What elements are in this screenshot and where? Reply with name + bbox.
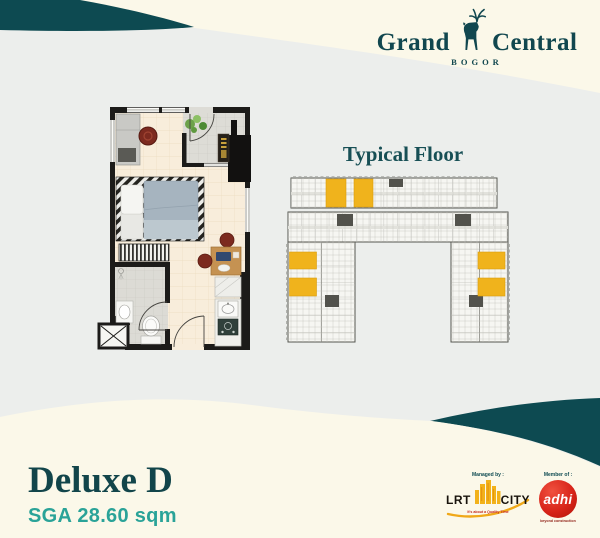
entrance-bottom-opening	[172, 344, 204, 350]
wardrobe	[215, 277, 241, 297]
typical-floor-title: Typical Floor	[278, 142, 528, 167]
managed-by-label: Managed by :	[446, 472, 530, 478]
city-word: CITY	[501, 494, 530, 506]
brochure-page: Grand Central BOGOR	[0, 0, 600, 538]
highlighted-unit	[290, 252, 317, 269]
sofa-cabinet	[116, 114, 140, 165]
unit-sign-plaque	[218, 134, 229, 162]
unit-info: Deluxe D SGA 28.60 sqm	[28, 460, 177, 528]
unit-floor-plan	[88, 93, 263, 358]
managed-by-block: Managed by : LRT	[446, 472, 530, 528]
member-of-block: Member of : adhi beyond construction	[530, 472, 586, 523]
brand-logo: Grand Central BOGOR	[372, 6, 582, 67]
highlighted-unit	[478, 278, 505, 296]
adhi-logo: adhi	[539, 480, 577, 518]
main-door-opening	[189, 107, 213, 113]
column-stem	[231, 120, 237, 135]
logo-word-central: Central	[492, 30, 577, 55]
lrt-tagline: It's about a Quality Time	[446, 510, 530, 514]
logo-city-label: BOGOR	[372, 57, 582, 67]
lrt-word: LRT	[446, 494, 471, 506]
typical-floor-plan	[276, 168, 528, 350]
unit-name-title: Deluxe D	[28, 460, 177, 503]
highlighted-unit	[326, 179, 346, 207]
adhi-tagline: beyond construction	[530, 519, 586, 523]
highlighted-unit	[354, 179, 373, 207]
highlighted-unit	[478, 252, 505, 269]
adhi-wordmark: adhi	[544, 492, 573, 507]
column-block	[228, 135, 251, 182]
lrt-city-logo: LRT CITY It's about a Quality Time	[446, 480, 530, 528]
bench-console	[119, 244, 169, 261]
highlighted-unit	[290, 278, 317, 296]
logo-word-grand: Grand	[377, 30, 450, 55]
unit-area-label: SGA 28.60 sqm	[28, 505, 177, 528]
bed	[116, 177, 204, 241]
kitchen-counter	[215, 299, 241, 346]
round-table	[139, 127, 157, 145]
deer-icon	[453, 6, 489, 56]
member-of-label: Member of :	[530, 472, 586, 478]
service-shaft	[99, 324, 128, 348]
floor-plate-outline	[287, 177, 510, 343]
